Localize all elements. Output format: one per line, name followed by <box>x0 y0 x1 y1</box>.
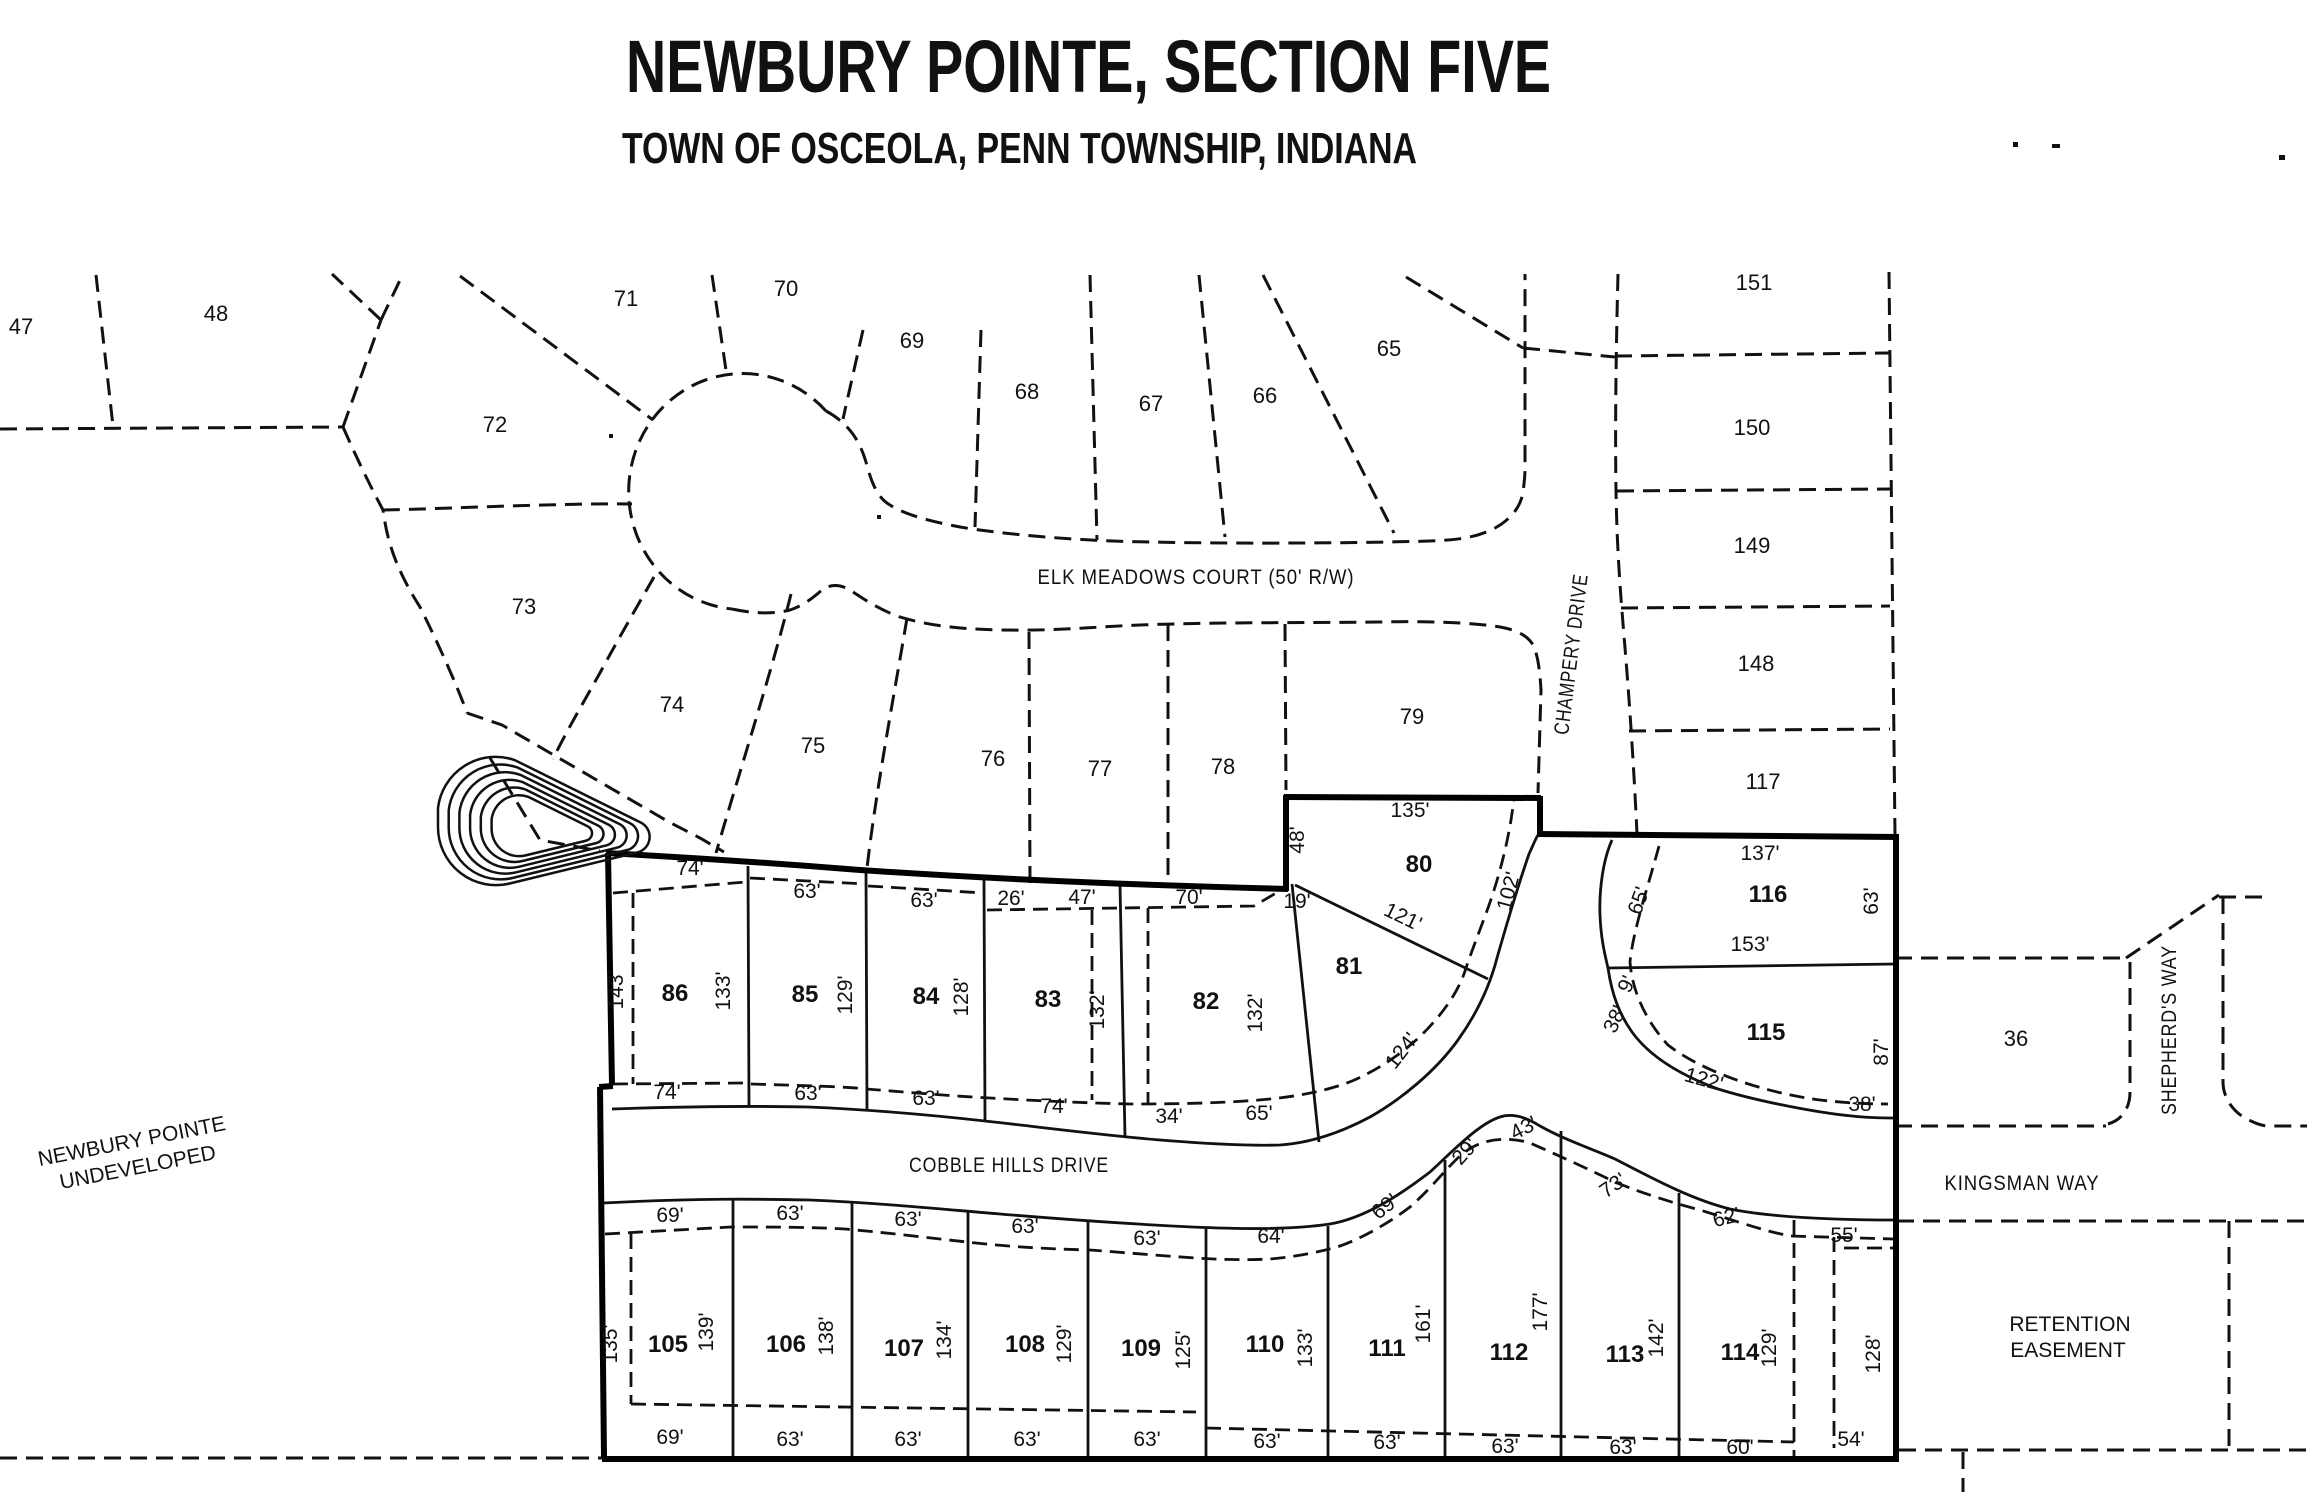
svg-text:63': 63' <box>793 880 820 903</box>
svg-text:COBBLE HILLS DRIVE: COBBLE HILLS DRIVE <box>909 1154 1109 1177</box>
svg-text:34': 34' <box>1155 1105 1182 1128</box>
svg-text:66: 66 <box>1253 383 1277 408</box>
svg-text:133': 133' <box>712 971 735 1010</box>
svg-text:111: 111 <box>1368 1335 1405 1362</box>
svg-text:117: 117 <box>1745 769 1780 794</box>
svg-text:47: 47 <box>9 314 33 339</box>
svg-text:71: 71 <box>614 286 638 311</box>
svg-text:85: 85 <box>792 981 819 1008</box>
svg-text:70': 70' <box>1175 886 1202 909</box>
svg-text:78: 78 <box>1211 754 1235 779</box>
svg-text:54': 54' <box>1837 1428 1864 1451</box>
svg-text:77: 77 <box>1088 756 1112 781</box>
svg-text:SHEPHERD'S WAY: SHEPHERD'S WAY <box>2158 945 2181 1115</box>
svg-text:79: 79 <box>1400 704 1424 729</box>
svg-text:83: 83 <box>1035 986 1062 1013</box>
svg-text:38': 38' <box>1848 1093 1875 1116</box>
svg-text:112: 112 <box>1490 1339 1529 1366</box>
svg-text:125': 125' <box>1172 1330 1195 1369</box>
svg-text:73: 73 <box>512 594 536 619</box>
svg-text:177': 177' <box>1529 1292 1552 1331</box>
svg-text:128': 128' <box>950 977 973 1016</box>
svg-text:132': 132' <box>1086 990 1109 1029</box>
svg-text:105: 105 <box>648 1331 688 1358</box>
svg-text:143': 143' <box>605 970 628 1009</box>
svg-text:116: 116 <box>1749 881 1788 908</box>
svg-text:150: 150 <box>1734 415 1771 440</box>
svg-text:86: 86 <box>662 980 689 1007</box>
svg-text:149: 149 <box>1734 533 1771 558</box>
svg-text:63': 63' <box>1860 887 1883 914</box>
svg-text:87': 87' <box>1870 1038 1893 1065</box>
svg-text:47': 47' <box>1068 886 1095 909</box>
svg-text:80: 80 <box>1406 851 1433 878</box>
svg-text:148: 148 <box>1738 651 1775 676</box>
svg-text:134': 134' <box>933 1320 956 1359</box>
svg-text:115: 115 <box>1747 1019 1786 1046</box>
svg-text:63': 63' <box>912 1087 939 1110</box>
svg-text:84: 84 <box>913 983 940 1010</box>
svg-text:63': 63' <box>1133 1227 1160 1250</box>
svg-text:114: 114 <box>1721 1339 1760 1366</box>
svg-text:65': 65' <box>1245 1102 1272 1125</box>
svg-text:ELK MEADOWS COURT (50' R/W): ELK MEADOWS COURT (50' R/W) <box>1038 566 1355 589</box>
svg-text:63': 63' <box>776 1202 803 1225</box>
svg-text:81: 81 <box>1336 953 1363 980</box>
svg-text:63': 63' <box>1013 1428 1040 1451</box>
svg-text:129': 129' <box>834 975 857 1014</box>
svg-text:132': 132' <box>1244 993 1267 1032</box>
svg-text:63': 63' <box>1133 1428 1160 1451</box>
svg-text:76: 76 <box>981 746 1005 771</box>
svg-text:82: 82 <box>1193 988 1220 1015</box>
svg-text:NEWBURY POINTE, SECTION FIVE: NEWBURY POINTE, SECTION FIVE <box>626 25 1551 108</box>
svg-text:48: 48 <box>204 301 228 326</box>
svg-text:137': 137' <box>1740 842 1779 865</box>
svg-text:129': 129' <box>1758 1328 1781 1367</box>
svg-text:106: 106 <box>766 1331 806 1358</box>
svg-text:135': 135' <box>599 1324 622 1363</box>
svg-text:67: 67 <box>1139 391 1163 416</box>
svg-text:135': 135' <box>1390 799 1429 822</box>
svg-text:139': 139' <box>695 1312 718 1351</box>
svg-text:63': 63' <box>894 1208 921 1231</box>
svg-text:161': 161' <box>1412 1304 1435 1343</box>
svg-text:74': 74' <box>1040 1095 1067 1118</box>
svg-text:55': 55' <box>1830 1224 1857 1247</box>
svg-text:70: 70 <box>774 276 798 301</box>
svg-text:63': 63' <box>1609 1436 1636 1459</box>
svg-text:TOWN OF OSCEOLA, PENN TOWNSHIP: TOWN OF OSCEOLA, PENN TOWNSHIP, INDIANA <box>622 124 1417 173</box>
svg-text:60': 60' <box>1726 1436 1753 1459</box>
svg-text:72: 72 <box>483 412 507 437</box>
svg-text:142': 142' <box>1645 1318 1668 1357</box>
svg-text:107: 107 <box>884 1335 924 1362</box>
svg-text:69': 69' <box>656 1426 683 1449</box>
svg-text:63': 63' <box>1011 1215 1038 1238</box>
svg-text:69': 69' <box>656 1204 683 1227</box>
svg-text:108: 108 <box>1005 1331 1045 1358</box>
svg-text:KINGSMAN WAY: KINGSMAN WAY <box>1945 1172 2100 1195</box>
svg-text:153': 153' <box>1730 933 1769 956</box>
svg-text:48': 48' <box>1286 826 1309 853</box>
svg-text:63': 63' <box>910 889 937 912</box>
svg-text:RETENTION: RETENTION <box>2009 1313 2130 1336</box>
svg-text:63': 63' <box>894 1428 921 1451</box>
svg-text:74': 74' <box>676 857 703 880</box>
svg-text:63': 63' <box>1373 1431 1400 1454</box>
svg-text:36: 36 <box>2004 1026 2028 1051</box>
svg-text:75: 75 <box>801 733 825 758</box>
svg-text:EASEMENT: EASEMENT <box>2010 1339 2126 1362</box>
svg-text:63': 63' <box>1491 1435 1518 1458</box>
svg-text:74: 74 <box>660 692 684 717</box>
svg-text:128': 128' <box>1862 1334 1885 1373</box>
svg-text:26': 26' <box>997 887 1024 910</box>
svg-text:74': 74' <box>653 1081 680 1104</box>
svg-text:138': 138' <box>815 1316 838 1355</box>
svg-text:133': 133' <box>1294 1328 1317 1367</box>
svg-text:109: 109 <box>1121 1335 1161 1362</box>
svg-text:63': 63' <box>1253 1430 1280 1453</box>
svg-text:68: 68 <box>1015 379 1039 404</box>
svg-text:113: 113 <box>1606 1341 1645 1368</box>
svg-text:110: 110 <box>1246 1331 1285 1358</box>
svg-text:69: 69 <box>900 328 924 353</box>
svg-text:65: 65 <box>1377 336 1401 361</box>
svg-text:19': 19' <box>1283 890 1310 913</box>
svg-text:63': 63' <box>776 1428 803 1451</box>
svg-text:63': 63' <box>794 1082 821 1105</box>
svg-text:151: 151 <box>1736 270 1773 295</box>
svg-text:129': 129' <box>1053 1324 1076 1363</box>
svg-text:64': 64' <box>1257 1225 1284 1248</box>
